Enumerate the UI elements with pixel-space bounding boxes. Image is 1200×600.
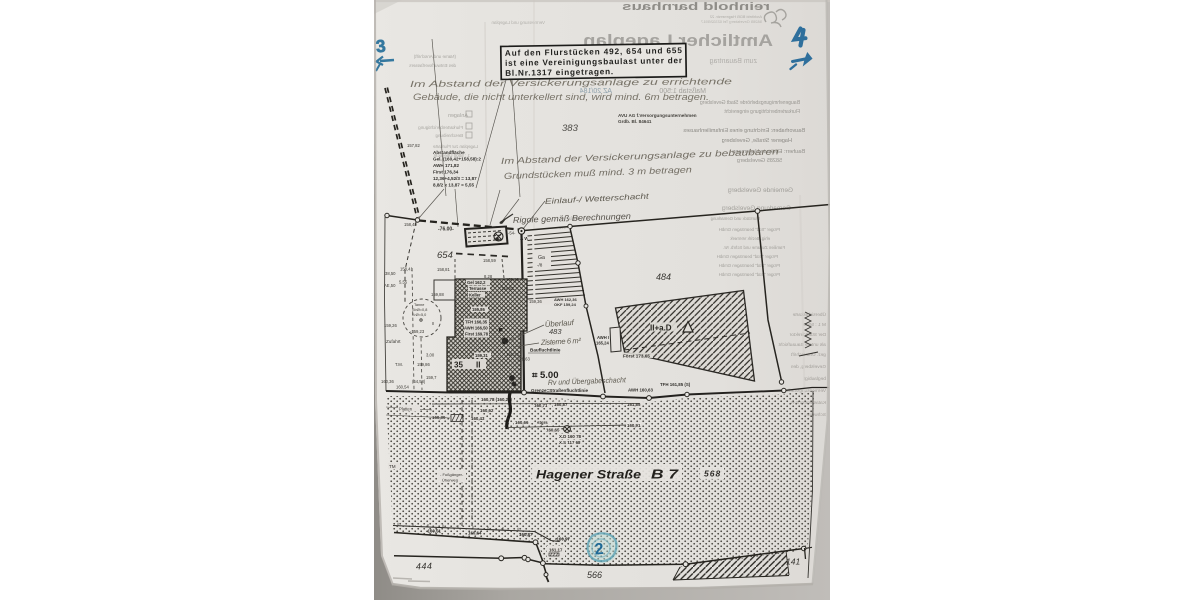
svg-text:Flurkartenberichtigung eingere: Flurkartenberichtigung eingereicht <box>724 109 800 115</box>
svg-text:-160,51: -160,51 <box>426 529 441 534</box>
svg-text:158,81: 158,81 <box>437 267 450 272</box>
svg-text:des Entwurfsverfassers: des Entwurfsverfassers <box>408 63 456 68</box>
svg-text:AVU AG f.Versorgungsunternehme: AVU AG f.Versorgungsunternehmen <box>618 113 697 118</box>
svg-text:3,00: 3,00 <box>426 353 435 358</box>
svg-text:als untere Bauaufsicht: als untere Bauaufsicht <box>778 342 826 348</box>
svg-text:Tanne: Tanne <box>414 303 424 307</box>
svg-text:159,63: 159,63 <box>517 357 530 362</box>
svg-text:566: 566 <box>587 570 602 580</box>
svg-text:Flurstück und Gemarkung: Flurstück und Gemarkung <box>710 216 760 221</box>
svg-text:Gel 162,2: Gel 162,2 <box>467 280 486 285</box>
svg-text:444: 444 <box>416 561 433 572</box>
svg-text:B 7: B 7 <box>651 467 679 482</box>
svg-text:-160,97: -160,97 <box>555 537 570 542</box>
svg-text:-159,23: -159,23 <box>410 329 425 334</box>
svg-text:161,17: 161,17 <box>549 548 563 553</box>
svg-text:X.S 117 68: X.S 117 68 <box>559 440 581 445</box>
svg-text:160,62: 160,62 <box>480 408 494 413</box>
svg-text:5,55: 5,55 <box>399 280 408 285</box>
svg-text:160,64: 160,64 <box>468 531 482 536</box>
svg-text:AWH 160,63: AWH 160,63 <box>628 388 653 393</box>
svg-text:Först 173,65: Först 173,65 <box>623 354 650 359</box>
svg-text:12,36+4,52/3 = 13,87: 12,36+4,52/3 = 13,87 <box>433 176 477 181</box>
svg-text:161,85: 161,85 <box>627 402 641 407</box>
svg-text:160,43: 160,43 <box>471 416 485 421</box>
svg-text:484: 484 <box>656 272 671 282</box>
svg-text:Prüger "Süd" beantragen GmbH: Prüger "Süd" beantragen GmbH <box>719 227 780 232</box>
svg-text:159,88: 159,88 <box>431 292 444 297</box>
svg-text:First 169,78: First 169,78 <box>465 332 489 337</box>
svg-text:OKF 159,24: OKF 159,24 <box>554 302 577 307</box>
svg-text:beglaubigt: beglaubigt <box>803 376 826 382</box>
svg-text:160,66: 160,66 <box>515 420 529 425</box>
svg-text:-76.00-: -76.00- <box>438 227 454 233</box>
svg-text:141: 141 <box>786 557 800 567</box>
svg-text:T.M.: T.M. <box>395 362 403 367</box>
svg-text:First 176,34: First 176,34 <box>433 170 459 175</box>
svg-text:KrØ=5,0: KrØ=5,0 <box>412 313 426 317</box>
svg-text:zum Bauantrag: zum Bauantrag <box>709 58 757 65</box>
svg-text:Prüger "Süd" beantragen GmbH: Prüger "Süd" beantragen GmbH <box>719 272 780 277</box>
svg-text:AWH 171,82: AWH 171,82 <box>433 163 459 168</box>
svg-text:159,86: 159,86 <box>417 362 430 367</box>
svg-text:-54-: -54- <box>508 231 516 236</box>
svg-text:Prüger "Süd" beantragen GmbH: Prüger "Süd" beantragen GmbH <box>719 263 780 268</box>
svg-text:stgrs: stgrs <box>537 420 548 425</box>
svg-text:157,82: 157,82 <box>407 143 420 148</box>
svg-text:Platten: Platten <box>399 407 413 412</box>
svg-text:Bl.Nr.1317 eingetragen.: Bl.Nr.1317 eingetragen. <box>505 67 613 78</box>
svg-text:159,82: 159,82 <box>501 286 514 291</box>
svg-text:38,50: 38,50 <box>385 271 396 276</box>
svg-text:Baugenehmigungsbehörde Stadt G: Baugenehmigungsbehörde Stadt Gevelsberg <box>700 100 800 106</box>
svg-text:160,54: 160,54 <box>396 385 409 390</box>
svg-text:Grdb. Bl. 84641: Grdb. Bl. 84641 <box>618 119 652 124</box>
svg-text:(Name und Anschrift): (Name und Anschrift) <box>413 54 456 59</box>
svg-text:654: 654 <box>437 250 453 261</box>
svg-text:Terrasse: Terrasse <box>469 286 487 291</box>
svg-text:TFH 166,35: TFH 166,35 <box>465 320 488 325</box>
svg-text:35: 35 <box>454 361 463 370</box>
svg-text:ehig. Bezirk Vermerk: ehig. Bezirk Vermerk <box>730 236 770 241</box>
svg-text:Gevelsberg, den: Gevelsberg, den <box>790 364 826 370</box>
svg-text:Bauvorhaben: Errichtung eines: Bauvorhaben: Errichtung eines Einfamilie… <box>683 128 805 134</box>
svg-text:Überweg: Überweg <box>442 478 458 483</box>
svg-text:58285 Gevelsberg: 58285 Gevelsberg <box>737 158 782 164</box>
svg-text:58285 Gevelsberg Tel 02332/551: 58285 Gevelsberg Tel 02332/5517 <box>700 19 762 24</box>
svg-text:158,49: 158,49 <box>404 222 417 227</box>
svg-text:Anlagen: Anlagen <box>448 113 468 119</box>
svg-text:165,24: 165,24 <box>596 341 609 346</box>
svg-text:159,7: 159,7 <box>426 375 437 380</box>
svg-text:Ga: Ga <box>538 255 545 261</box>
svg-text:II+a.D: II+a.D <box>650 324 672 333</box>
svg-text:2: 2 <box>594 541 604 559</box>
svg-text:383: 383 <box>562 123 579 134</box>
svg-text:II: II <box>476 361 480 370</box>
svg-text:160,36: 160,36 <box>381 379 394 384</box>
svg-text:159,31: 159,31 <box>475 353 488 358</box>
svg-text:159,36: 159,36 <box>529 299 542 304</box>
svg-text:8,8/2 x 13,87 = 5,55: 8,8/2 x 13,87 = 5,55 <box>433 183 474 188</box>
svg-text:Hagener Straße: Hagener Straße <box>536 468 641 482</box>
svg-text:568: 568 <box>704 469 721 479</box>
svg-text:TM: TM <box>389 464 396 469</box>
svg-text:-/8: -/8 <box>537 263 543 268</box>
svg-text:Abstandfläche: Abstandfläche <box>433 150 465 155</box>
svg-text:X.D 160 78: X.D 160 78 <box>559 434 582 439</box>
svg-text:Hagener Straße, Gevelsberg: Hagener Straße, Gevelsberg <box>722 138 792 144</box>
svg-text:159,13: 159,13 <box>506 277 519 282</box>
svg-text:reinhold barnhaus: reinhold barnhaus <box>622 1 770 13</box>
svg-text:159,26: 159,26 <box>384 323 397 328</box>
svg-text:StrØ=0,8: StrØ=0,8 <box>412 308 427 312</box>
svg-text:158,41: 158,41 <box>400 267 413 272</box>
svg-text:160,87: 160,87 <box>554 402 568 407</box>
svg-text:AE,50: AE,50 <box>384 283 396 288</box>
svg-text:Familien Zuname und Schrb. Nr.: Familien Zuname und Schrb. Nr. <box>723 245 785 250</box>
svg-text:Keller: Keller <box>469 293 481 298</box>
svg-text:Beschreibung: Beschreibung <box>435 133 463 138</box>
svg-text:Prüger "Süd" beantragen GmbH: Prüger "Süd" beantragen GmbH <box>717 254 778 259</box>
svg-text:160,87: 160,87 <box>519 532 533 537</box>
svg-text:TFH 161,85 (S): TFH 161,85 (S) <box>660 382 691 387</box>
svg-text:Vermessung und Lageplan: Vermessung und Lageplan <box>491 20 545 25</box>
svg-text:II: II <box>432 321 434 326</box>
svg-text:160,91: 160,91 <box>627 423 641 428</box>
svg-text:483: 483 <box>549 327 562 336</box>
svg-text:Gebäude, die nicht unterkeller: Gebäude, die nicht unterkellert sind, wi… <box>413 92 709 102</box>
svg-text:Gemeinde Gevelsberg: Gemeinde Gevelsberg <box>728 187 793 194</box>
svg-text:- Fußgänger-: - Fußgänger- <box>440 472 464 477</box>
svg-text:gez. Unterschrift: gez. Unterschrift <box>790 352 826 358</box>
svg-text:8,28: 8,28 <box>484 274 493 279</box>
svg-text:160,65: 160,65 <box>546 428 560 433</box>
svg-text:AWH I: AWH I <box>597 335 609 340</box>
svg-text:Zufahrt: Zufahrt <box>386 339 401 344</box>
svg-text:AWH 166,50: AWH 166,50 <box>464 326 488 331</box>
svg-text:Lageplan zur Flurkarte: Lageplan zur Flurkarte <box>432 144 478 149</box>
svg-text:158,59: 158,59 <box>483 258 496 263</box>
svg-text:Baufluchtlinie: Baufluchtlinie <box>530 348 561 353</box>
svg-text:159,86: 159,86 <box>472 307 485 312</box>
svg-text:Gel. (160,42+158,58):2: Gel. (160,42+158,58):2 <box>433 157 481 162</box>
